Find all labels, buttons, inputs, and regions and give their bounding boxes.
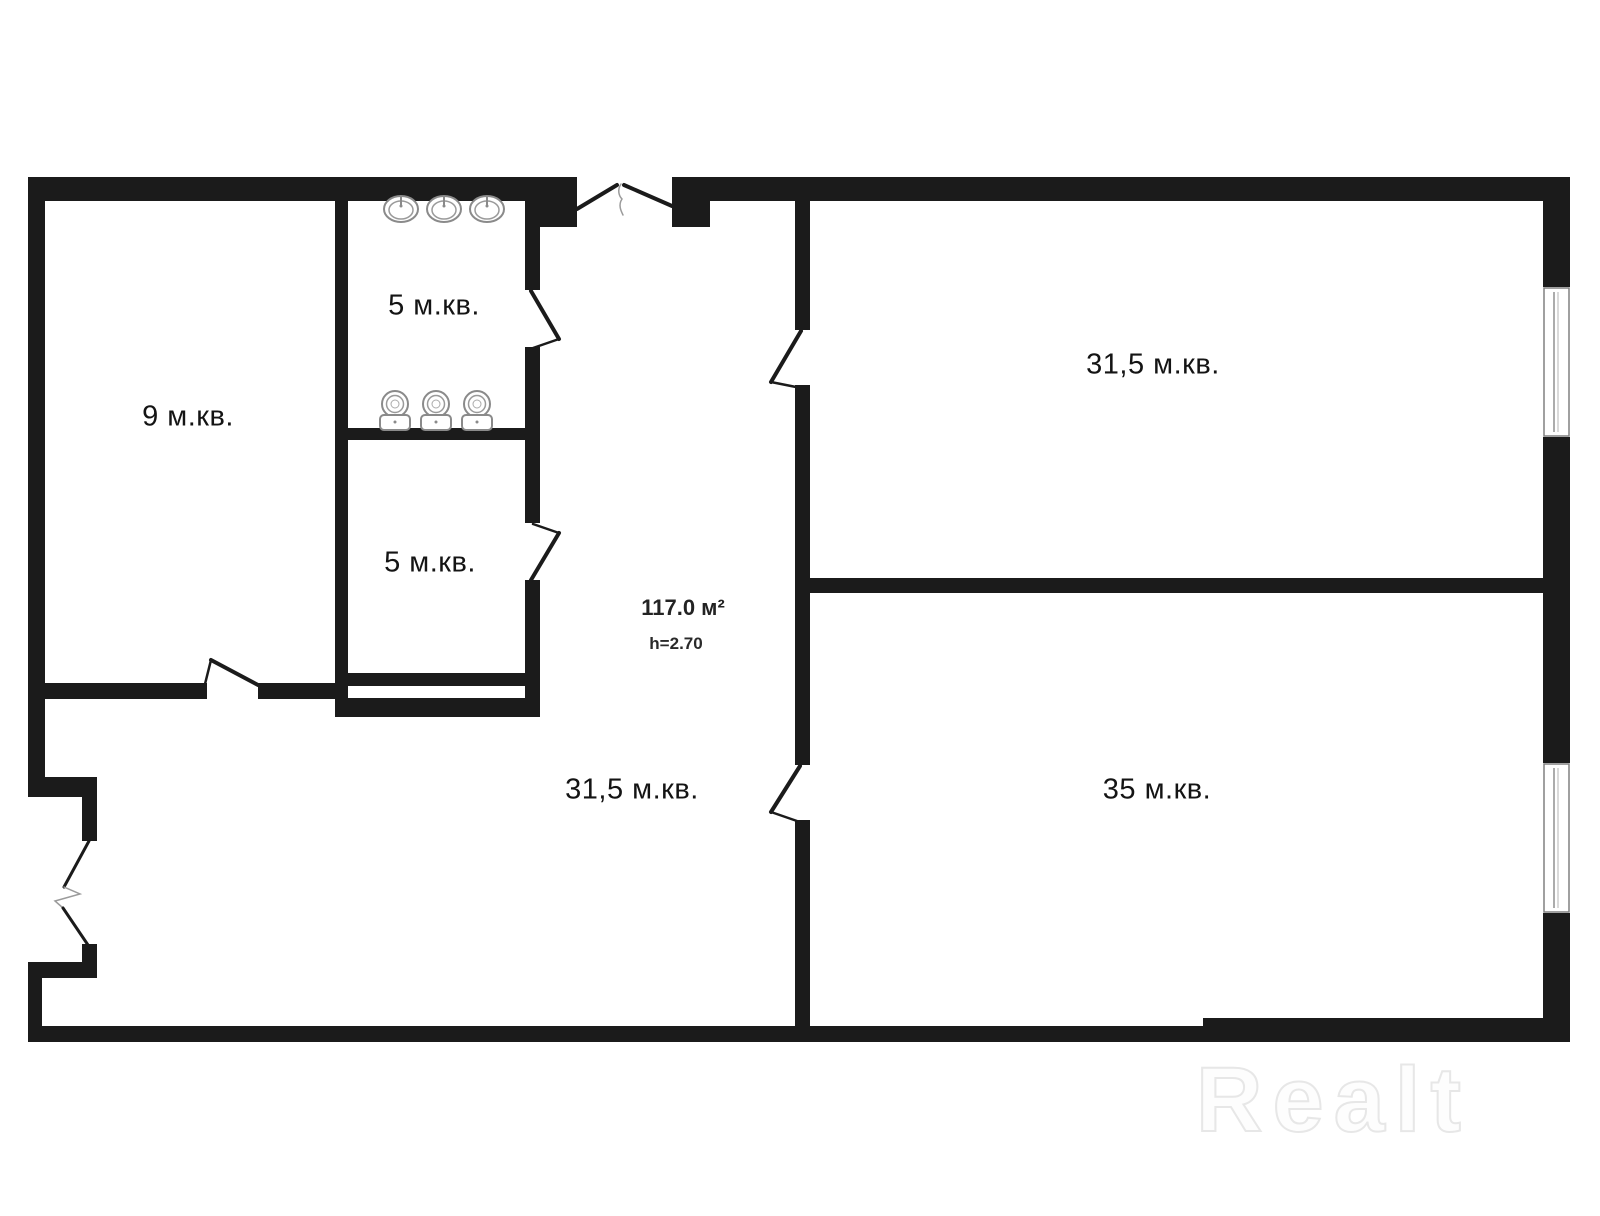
room-label-bottom-right: 35 м.кв. [1103,774,1211,807]
wall-segment [1203,1018,1570,1042]
door-swing-icon [531,291,559,348]
wall-segment [28,177,45,797]
wall-segment [672,177,1570,201]
wall-segment [525,198,540,290]
window-icon [1544,764,1569,912]
door-swing-icon [771,766,800,821]
room-label-hall: 31,5 м.кв. [565,774,699,807]
wall-segment [28,1026,1203,1042]
sinks [384,196,504,222]
room-label-left: 9 м.кв. [142,401,234,434]
total-area-label: 117.0 м² [641,595,725,621]
wall-segment [1543,177,1570,287]
wall-segment [795,201,810,330]
wall-segment [335,698,540,717]
toilet-icon [462,391,492,430]
toilet-icon [421,391,451,430]
wall-segment [1543,437,1570,763]
wall-segment [795,385,810,765]
wall-segment [348,673,540,686]
room-label-wc-top: 5 м.кв. [388,290,480,323]
toilet-icon [380,391,410,430]
wall-segment [525,580,540,717]
wall-segment [672,201,710,227]
entry-double-door-icon [577,184,672,215]
floorplan-drawing [0,0,1600,1216]
wall-segment [28,777,97,797]
ceiling-height-label: h=2.70 [649,634,702,654]
sink-icon [384,196,418,222]
balcony-opening-icon [55,841,89,945]
wall-segment [82,797,97,841]
window-icon [1544,288,1569,436]
realt-watermark-logo: Realt [1196,1048,1471,1153]
door-swing-icon [771,331,801,387]
wall-segment [795,578,1543,593]
door-swing-icon [205,660,258,685]
room-label-top-right: 31,5 м.кв. [1086,349,1220,382]
sink-icon [470,196,504,222]
sink-icon [427,196,461,222]
toilets [380,391,492,430]
door-swing-icon [531,524,559,580]
room-label-wc-bottom: 5 м.кв. [384,547,476,580]
walls [28,177,1570,1042]
floorplan-canvas: 9 м.кв. 5 м.кв. 5 м.кв. 31,5 м.кв. 31,5 … [0,0,1600,1216]
wall-segment [258,683,335,699]
wall-segment [1543,913,1570,1042]
wall-segment [795,820,810,1026]
wall-segment [45,683,207,699]
wall-segment [540,201,577,227]
wall-segment [335,198,348,717]
